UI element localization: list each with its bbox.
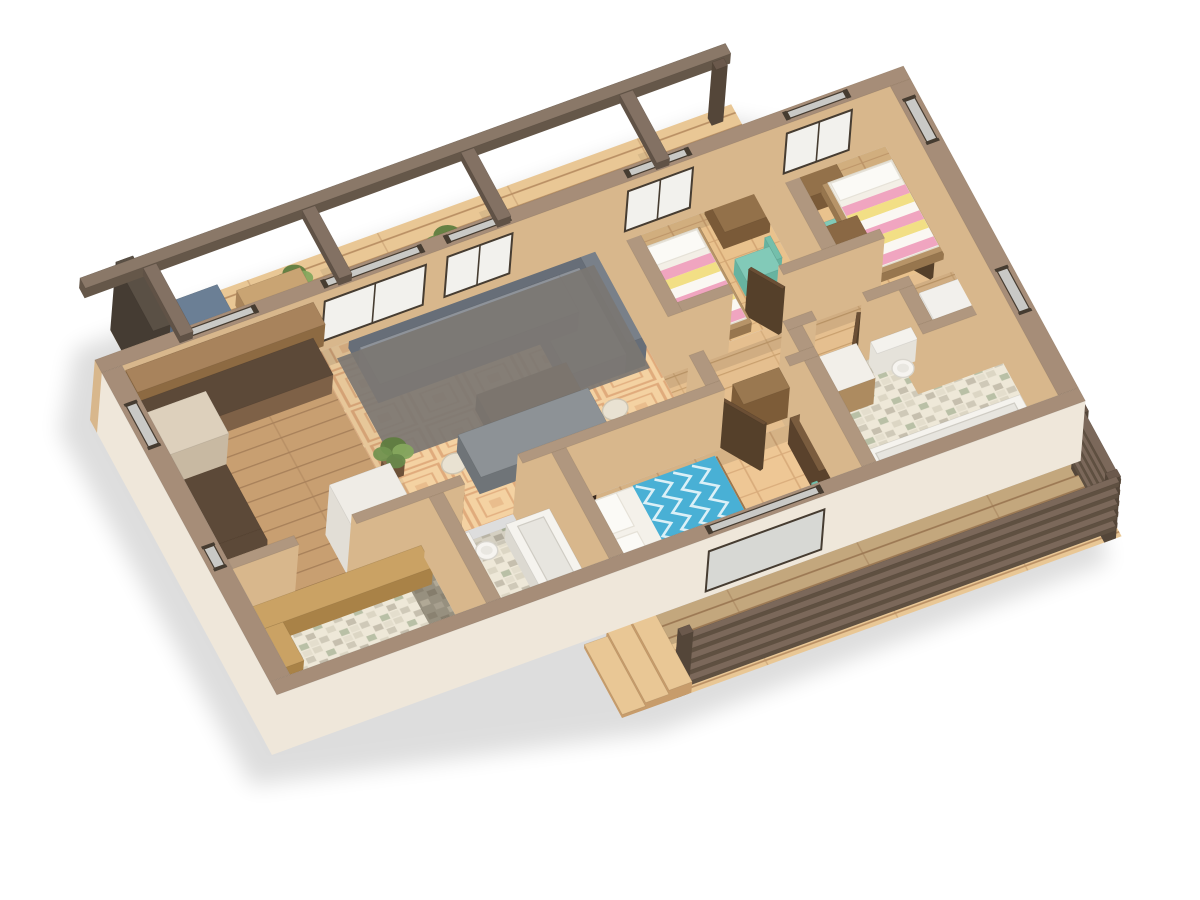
- floorplan-3d-view: [0, 0, 1200, 900]
- floorplan-render: [0, 0, 1200, 900]
